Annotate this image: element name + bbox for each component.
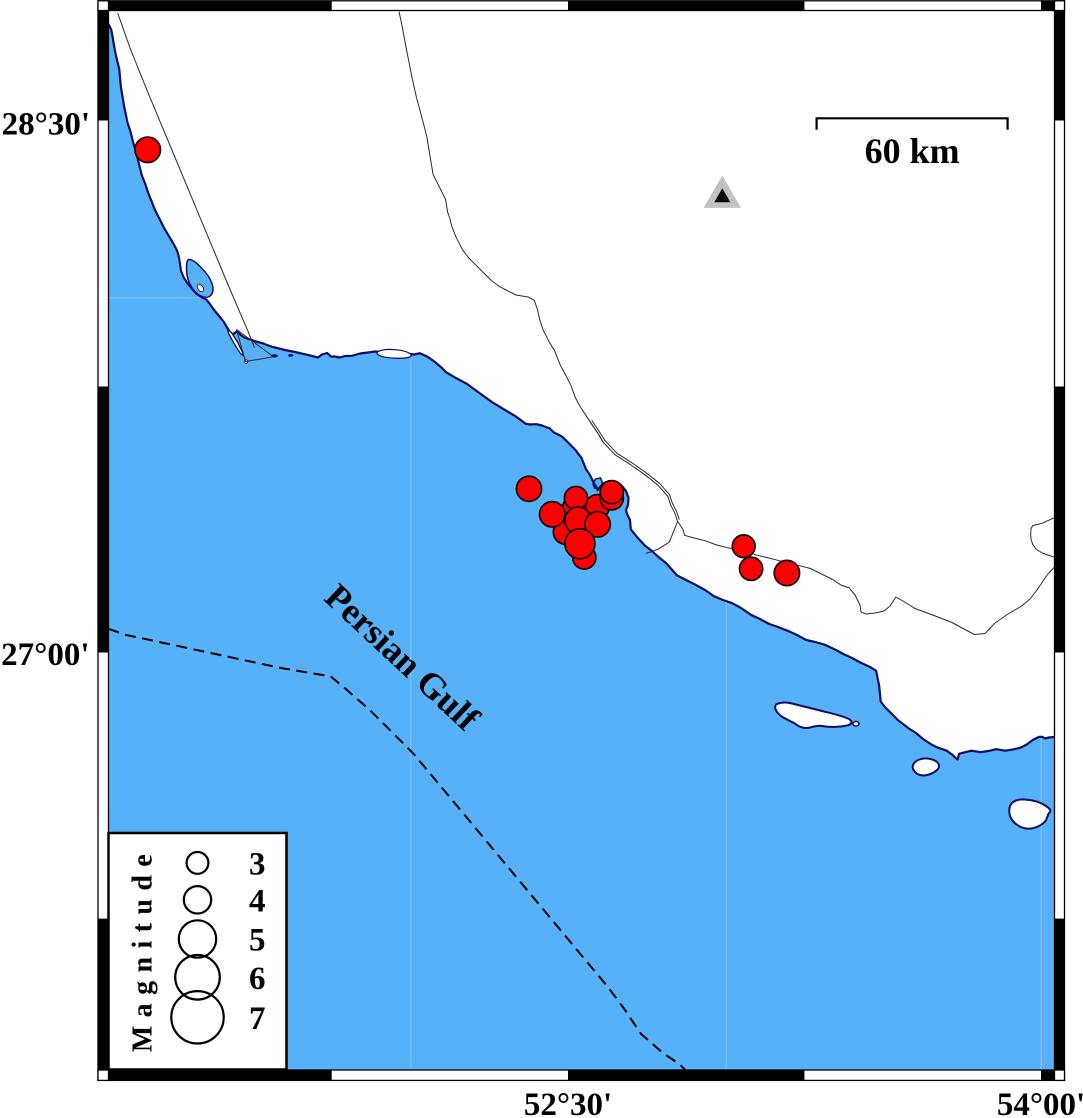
svg-text:Magnitude: Magnitude [128, 846, 159, 1052]
svg-text:7: 7 [249, 1001, 266, 1037]
svg-text:5: 5 [249, 923, 266, 959]
svg-text:4: 4 [249, 883, 266, 919]
svg-text:52°30': 52°30' [524, 1087, 612, 1118]
svg-text:60 km: 60 km [865, 131, 960, 171]
svg-text:27°00': 27°00' [1, 637, 89, 673]
svg-text:54°00': 54°00' [997, 1087, 1083, 1118]
svg-text:3: 3 [249, 846, 266, 882]
svg-text:28°30': 28°30' [2, 107, 90, 143]
svg-text:6: 6 [249, 961, 266, 997]
